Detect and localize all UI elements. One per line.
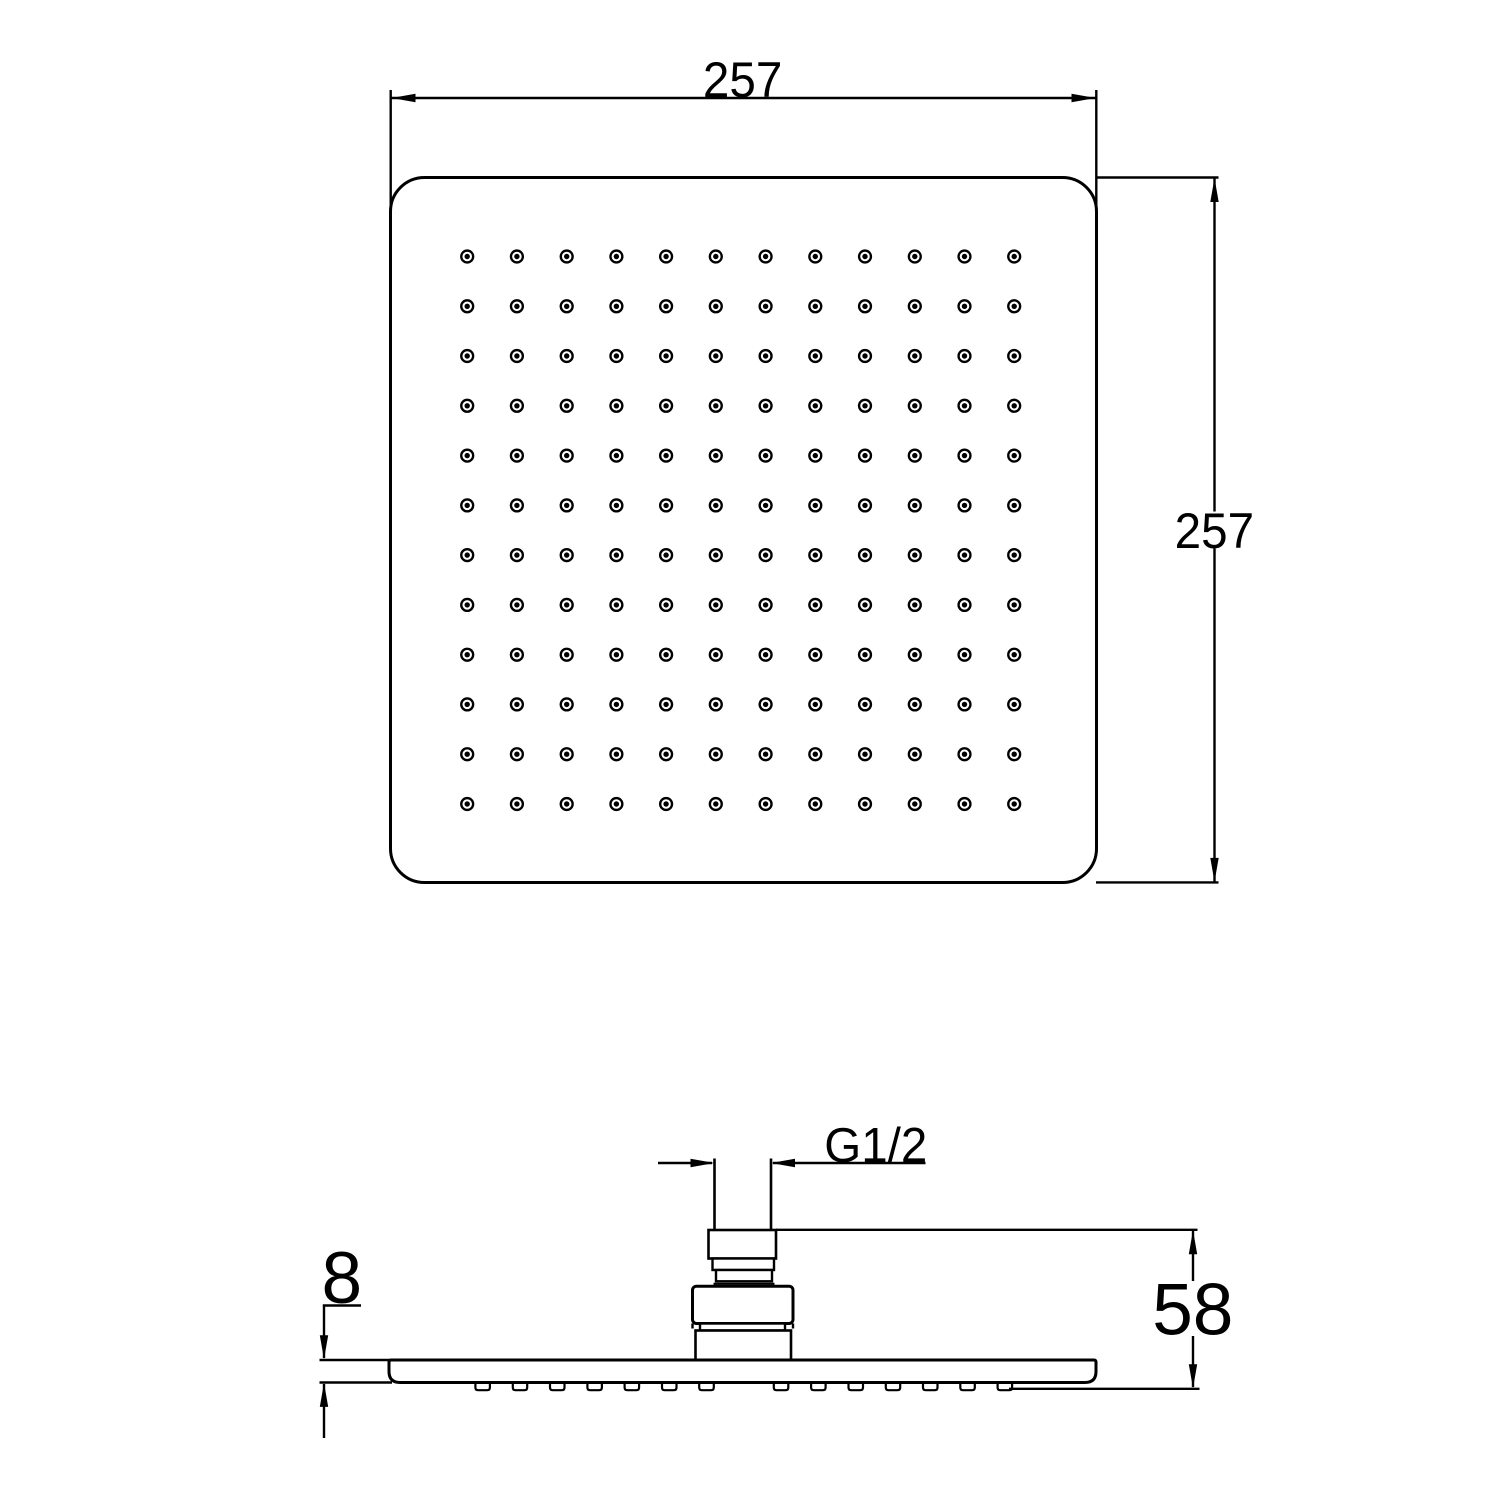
svg-text:257: 257 xyxy=(703,52,782,108)
svg-text:8: 8 xyxy=(321,1238,362,1319)
svg-text:257: 257 xyxy=(1175,503,1254,559)
svg-text:58: 58 xyxy=(1152,1270,1233,1351)
svg-text:G1/2: G1/2 xyxy=(824,1119,927,1173)
